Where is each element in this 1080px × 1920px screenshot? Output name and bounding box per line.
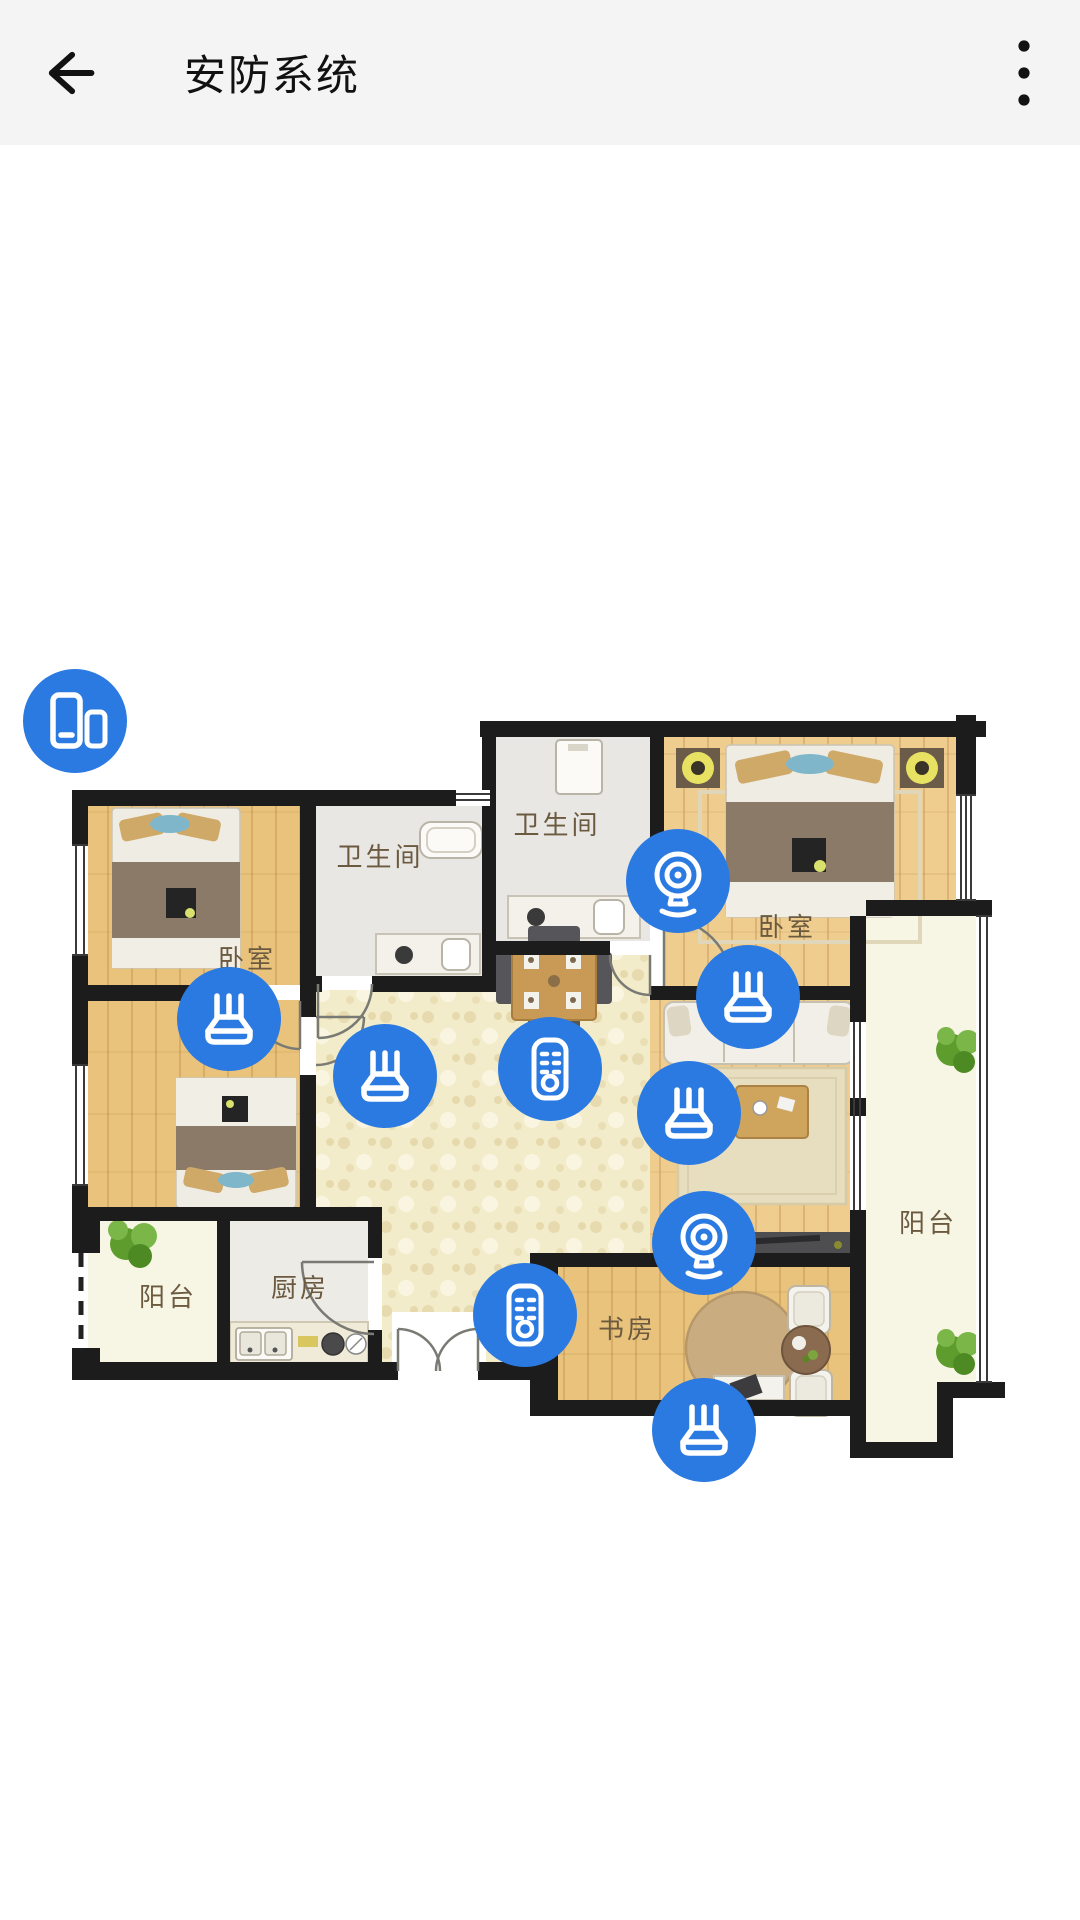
device-marker-remote-6[interactable] <box>498 1017 602 1121</box>
back-button[interactable] <box>34 37 106 109</box>
room-label-bedroom-right: 卧室 <box>758 912 816 942</box>
router-icon <box>637 1061 741 1165</box>
room-label-balcony-right: 阳台 <box>899 1208 957 1238</box>
camera-icon <box>626 829 730 933</box>
device-marker-sensor-10[interactable] <box>652 1378 756 1482</box>
floor-plan: 卧室卫生间卫生间卧室阳台阳台厨房书房 <box>0 0 1080 1920</box>
router-icon <box>652 1378 756 1482</box>
device-marker-gateway-1[interactable] <box>23 669 127 773</box>
device-marker-sensor-4[interactable] <box>696 945 800 1049</box>
router-icon <box>333 1024 437 1128</box>
device-marker-sensor-3[interactable] <box>177 967 281 1071</box>
device-marker-camera-2[interactable] <box>626 829 730 933</box>
remote-icon <box>498 1017 602 1121</box>
room-label-bathroom-top: 卫生间 <box>513 810 600 840</box>
device-marker-remote-9[interactable] <box>473 1263 577 1367</box>
more-menu-button[interactable] <box>994 37 1054 109</box>
devices-icon <box>23 669 127 773</box>
remote-icon <box>473 1263 577 1367</box>
more-vertical-icon <box>1016 36 1032 110</box>
app-header: 安防系统 <box>0 0 1080 145</box>
device-marker-sensor-7[interactable] <box>637 1061 741 1165</box>
room-label-balcony-left: 阳台 <box>139 1282 197 1312</box>
room-label-kitchen: 厨房 <box>271 1273 329 1303</box>
room-label-study: 书房 <box>598 1314 656 1344</box>
device-marker-camera-8[interactable] <box>652 1191 756 1295</box>
router-icon <box>177 967 281 1071</box>
room-label-bathroom-left: 卫生间 <box>336 842 423 872</box>
security-system-screen: 安防系统 <box>0 0 1080 1920</box>
camera-icon <box>652 1191 756 1295</box>
arrow-left-icon <box>40 43 100 103</box>
page-title: 安防系统 <box>184 42 360 103</box>
device-marker-sensor-5[interactable] <box>333 1024 437 1128</box>
router-icon <box>696 945 800 1049</box>
